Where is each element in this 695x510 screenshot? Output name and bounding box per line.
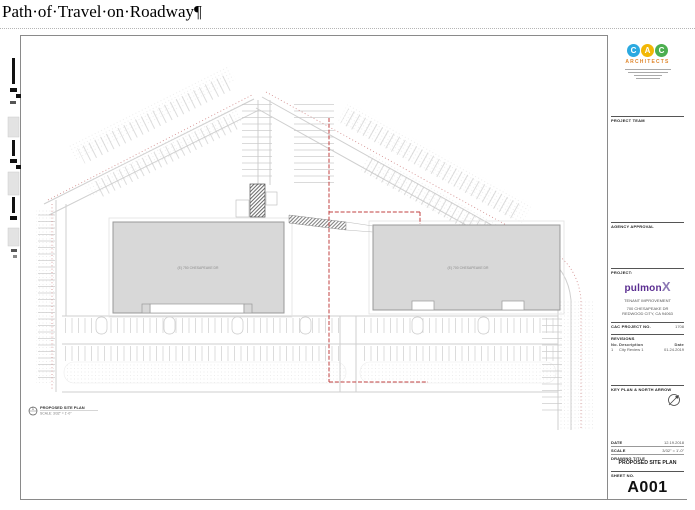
rev-no: 1 — [611, 347, 619, 352]
section-key-plan: KEY PLAN & NORTH ARROW — [611, 387, 671, 392]
rule — [611, 268, 684, 269]
date-label: DATE — [611, 440, 622, 445]
scale-value: 3/32" = 1'-0" — [662, 448, 684, 453]
word-document-page: { "document": { "title": "Path·of·Travel… — [0, 0, 695, 510]
section-project: PROJECT: — [611, 270, 632, 275]
pulmonx-logo-x: X — [662, 279, 671, 294]
project-address-2: REDWOOD CITY, CA 94063 — [608, 311, 687, 316]
revision-row: 1 City Review 1 01.24.2019 — [611, 347, 684, 352]
project-name: TENANT IMPROVEMENT — [608, 298, 687, 303]
section-revisions: REVISIONS — [611, 336, 635, 341]
sheet-number: A001 — [608, 479, 687, 497]
scale-label: SCALE — [611, 448, 626, 453]
north-arrow-icon — [666, 392, 682, 408]
logo-letter-a: A — [641, 44, 654, 57]
site-plan-image[interactable]: (E) 750 CHESAPEAKE DR (E) 700 CHESAPEAKE… — [0, 28, 695, 510]
rule — [611, 446, 684, 447]
document-title: Path·of·Travel·on·Roadway¶ — [2, 2, 202, 22]
firm-address-lines — [608, 67, 687, 79]
project-no-label: CAC PROJECT NO. — [611, 324, 651, 329]
rev-date: 01.24.2019 — [662, 347, 684, 352]
rule — [611, 322, 684, 323]
rule — [611, 222, 684, 223]
logo-letter-c1: C — [627, 44, 640, 57]
callout-title: PROPOSED SITE PLAN — [40, 405, 85, 410]
rule — [611, 334, 684, 335]
rule — [611, 454, 684, 455]
firm-name: ARCHITECTS — [608, 59, 687, 65]
building-left: (E) 750 CHESAPEAKE DR — [109, 218, 292, 317]
building-right-label: (E) 700 CHESAPEAKE DR — [448, 266, 489, 270]
section-project-team: PROJECT TEAM — [611, 118, 645, 123]
callout-number: 1 — [32, 407, 34, 411]
logo-letter-c2: C — [655, 44, 668, 57]
margin-notes — [8, 58, 21, 258]
sheet-no-label: SHEET NO. — [611, 473, 634, 478]
rev-desc: City Review 1 — [619, 347, 662, 352]
building-right: (E) 700 CHESAPEAKE DR — [369, 221, 564, 314]
titleblock: C A C ARCHITECTS PROJECT TEAM AGENCY APP… — [607, 35, 687, 499]
rule — [611, 385, 684, 386]
callout-scale: SCALE: 3/32" = 1'-0" — [40, 412, 72, 416]
pulmonx-logo-text: pulmon — [625, 283, 662, 294]
site-plan-drawing: (E) 750 CHESAPEAKE DR (E) 700 CHESAPEAKE… — [0, 28, 695, 510]
cac-logo: C A C — [608, 44, 687, 57]
section-agency-approval: AGENCY APPROVAL — [611, 224, 654, 229]
date-value: 12.19.2018 — [664, 440, 684, 445]
rule — [611, 116, 684, 117]
pulmonx-logo: pulmonX — [608, 278, 687, 296]
drawing-title: PROPOSED SITE PLAN — [608, 460, 687, 466]
building-left-label: (E) 750 CHESAPEAKE DR — [178, 266, 219, 270]
rule — [611, 471, 684, 472]
project-no-value: 1708 — [675, 324, 684, 329]
